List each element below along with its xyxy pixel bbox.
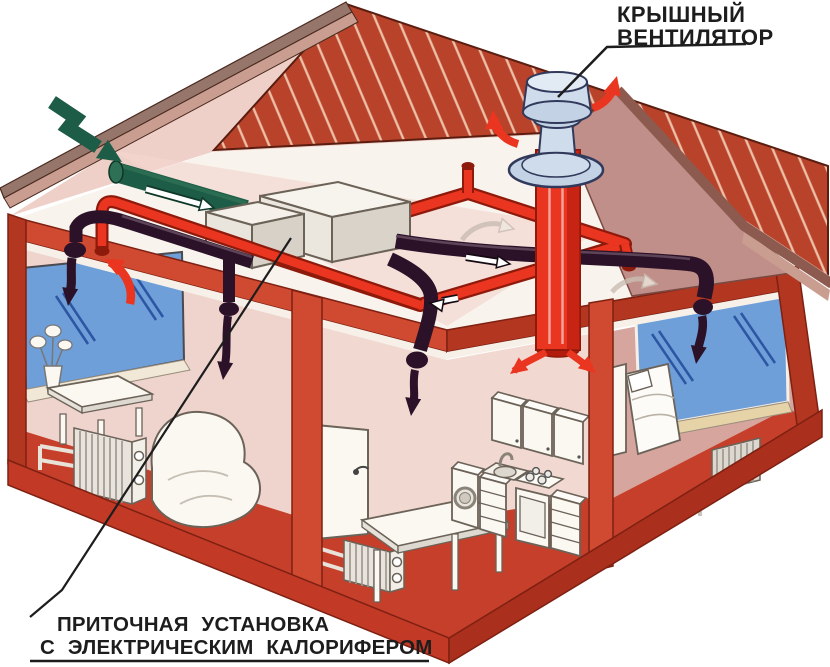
middle-drop-sleeve [406,352,428,369]
left-exhaust-mouth [95,246,110,256]
corner-post-left [8,214,26,474]
kitchen-bedroom-post [589,299,613,572]
bedroom-drop-sleeve [693,299,713,315]
ventilation-diagram: КРЫШНЫЙ ВЕНТИЛЯТОР ПРИТОЧНАЯ УСТАНОВКА С… [0,0,830,667]
partition-post [292,290,322,600]
bed [610,364,680,456]
label-roof-fan-line2: ВЕНТИЛЯТОР [617,25,774,50]
label-supply-line1: ПРИТОЧНАЯ УСТАНОВКА [57,613,329,636]
intake-duct-mouth [109,161,123,183]
left-drop-sleeve [64,242,86,258]
label-roof-fan-line1: КРЫШНЫЙ [617,2,746,27]
diagram-canvas: КРЫШНЫЙ ВЕНТИЛЯТОР ПРИТОЧНАЯ УСТАНОВКА С… [0,0,830,667]
ring-stub-mouth [462,162,475,170]
intake-air-arrow [52,102,98,147]
room-bedroom [610,296,814,553]
sink-basin [494,467,516,478]
drop2-sleeve [219,302,239,316]
label-supply-line2: С ЭЛЕКТРИЧЕСКИМ КАЛОРИФЕРОМ [40,636,433,659]
